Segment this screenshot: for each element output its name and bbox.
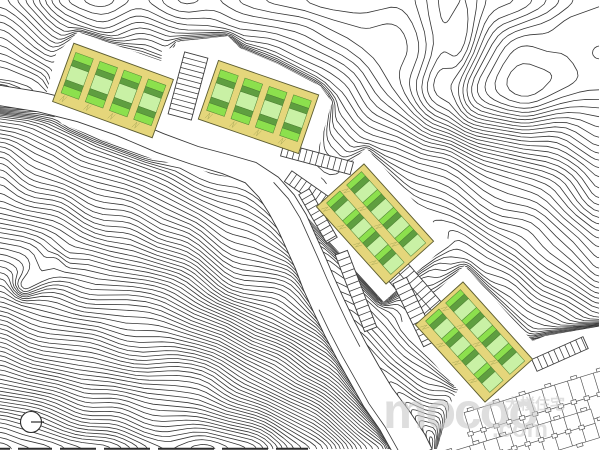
svg-text:大楼住宅: 大楼住宅 — [505, 395, 565, 413]
svg-text:.com: .com — [492, 416, 548, 443]
